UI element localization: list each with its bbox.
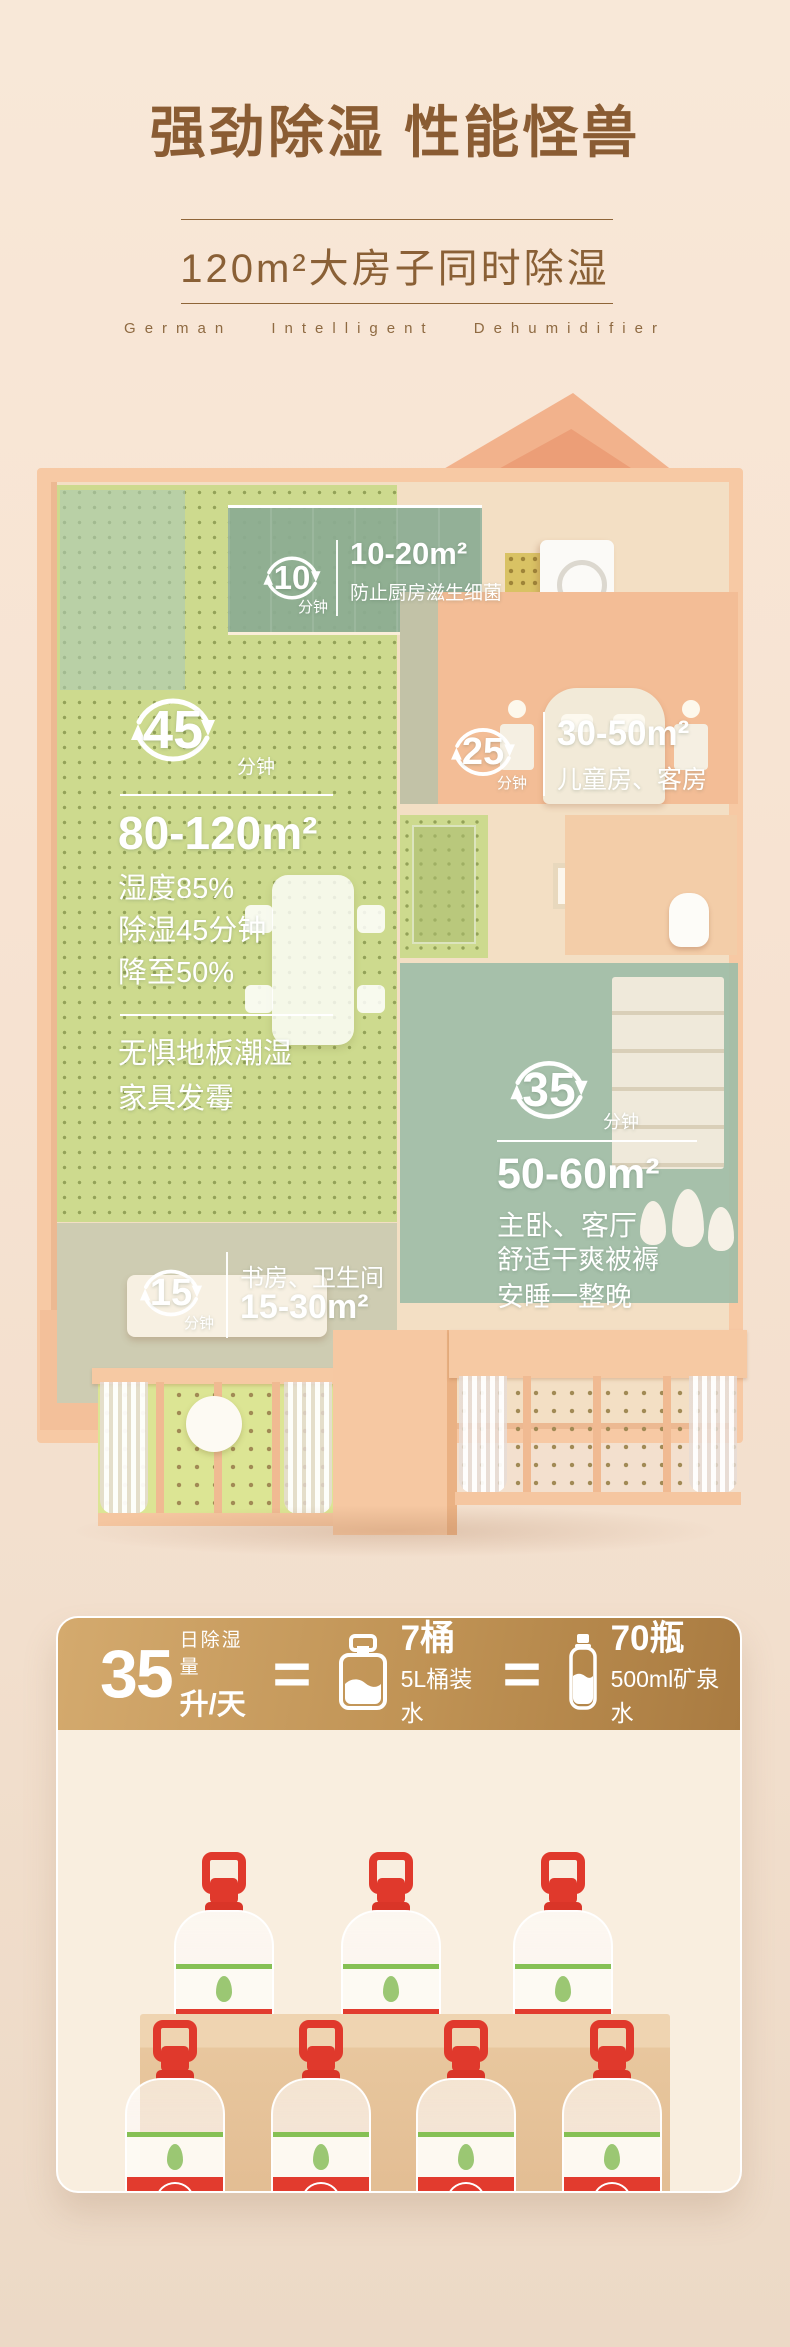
water-bottle-5l: 5L xyxy=(123,2020,227,2193)
water-bottle-icon xyxy=(563,1632,603,1717)
window-mullion xyxy=(156,1382,164,1514)
window-mullion xyxy=(663,1376,671,1493)
window-mullion xyxy=(593,1376,601,1493)
area-range: 15-30m² xyxy=(240,1288,369,1327)
ground-shadow xyxy=(70,1505,720,1557)
chair xyxy=(357,905,385,933)
bottle-cap xyxy=(307,2046,335,2072)
daily-capacity-card: 35 日除湿量 升/天 = 7桶 5L桶装水 = 70瓶 500ml矿泉水 xyxy=(56,1616,742,2193)
hallway-closet xyxy=(400,815,488,958)
daily-capacity-unit: 升/天 xyxy=(180,1681,251,1723)
bottle-desc: 500ml矿泉水 xyxy=(611,1660,722,1728)
water-jug-icon xyxy=(333,1632,393,1717)
stat-line: 降至50% xyxy=(118,952,266,994)
toilet xyxy=(669,893,709,947)
benefit-line: 家具发霉 xyxy=(118,1077,292,1122)
equals-sign: = xyxy=(502,1641,541,1708)
timer-circle-icon: 45 xyxy=(123,680,223,780)
divider xyxy=(226,1252,228,1338)
stat-line: 除湿45分钟 xyxy=(118,910,266,952)
capacity-header: 35 日除湿量 升/天 = 7桶 5L桶装水 = 70瓶 500ml矿泉水 xyxy=(58,1618,740,1730)
water-bottle-5l: 5L xyxy=(269,2020,373,2193)
divider xyxy=(120,1014,333,1016)
minutes-unit: 分钟 xyxy=(497,772,527,793)
benefit-line: 舒适干爽被褥 xyxy=(497,1242,659,1279)
room-names: 儿童房、客房 xyxy=(557,760,707,796)
room-bathroom xyxy=(565,815,737,955)
bottle-cap xyxy=(210,1878,238,1904)
area-range: 50-60m² xyxy=(497,1150,660,1199)
kids-room-annotation: 25 分钟 30-50m² 儿童房、客房 xyxy=(445,710,745,806)
minutes-value: 35 xyxy=(503,1044,595,1136)
english-tagline: German Intelligent Dehumidifier xyxy=(0,320,790,337)
minutes-unit: 分钟 xyxy=(603,1108,639,1134)
minutes-unit: 分钟 xyxy=(298,596,328,617)
window-mullion xyxy=(272,1382,280,1514)
bottle-body: 5L xyxy=(271,2078,371,2193)
benefit-lines: 无惧地板潮湿 家具发霉 xyxy=(118,1032,292,1122)
bottle-sticker: 5L xyxy=(418,2137,514,2193)
divider xyxy=(497,1140,697,1142)
page-title: 强劲除湿 性能怪兽 xyxy=(0,88,790,169)
master-bedroom-annotation: 35 分钟 50-60m² 主卧、客厅 舒适干爽被褥 安睡一整晚 xyxy=(497,1044,737,1314)
bottle-body: 5L xyxy=(416,2078,516,2193)
curtain xyxy=(284,1382,332,1514)
chair xyxy=(357,985,385,1013)
curtain xyxy=(689,1376,737,1493)
benefit-lines: 舒适干爽被褥 安睡一整晚 xyxy=(497,1242,659,1316)
bottle-cap xyxy=(377,1878,405,1904)
living-annotation: 45 分钟 80-120m² 湿度85% 除湿45分钟 降至50% 无惧地板潮湿… xyxy=(115,680,351,1140)
jug-count: 7桶 xyxy=(401,1620,481,1659)
benefit-line: 安睡一整晚 xyxy=(497,1279,659,1316)
room-benefit: 防止厨房滋生细菌 xyxy=(350,578,502,605)
bottle-count: 70瓶 xyxy=(611,1620,722,1659)
divider xyxy=(120,794,333,796)
balcony-right xyxy=(455,1330,741,1505)
jug-desc: 5L桶装水 xyxy=(401,1660,481,1728)
bottle-sticker: 5L xyxy=(127,2137,223,2193)
bottle-display: 5L 5L 5L 5L 5L 5L xyxy=(58,1730,740,2193)
water-bottle-5l: 5L xyxy=(560,2020,664,2193)
balcony-left xyxy=(98,1368,334,1526)
glass-door xyxy=(60,490,185,690)
balcony-table xyxy=(186,1396,242,1452)
leaf-icon xyxy=(555,1976,571,2002)
bottle-body: 5L xyxy=(125,2078,225,2193)
area-range: 30-50m² xyxy=(557,714,689,754)
volume-badge: 5L xyxy=(156,2182,194,2193)
kitchen-annotation: 10 分钟 10-20m² 防止厨房滋生细菌 xyxy=(252,530,492,640)
window-sill xyxy=(455,1492,741,1505)
leaf-icon xyxy=(167,2144,183,2170)
curtain xyxy=(459,1376,507,1493)
window-mullion xyxy=(523,1376,531,1493)
humidity-stats: 湿度85% 除湿45分钟 降至50% xyxy=(118,868,266,994)
divider xyxy=(336,540,338,616)
leaf-icon xyxy=(383,1976,399,2002)
timer-circle-icon: 35 xyxy=(503,1044,595,1136)
bottle-body: 5L xyxy=(562,2078,662,2193)
room-names: 主卧、客厅 xyxy=(497,1204,637,1244)
bottle-sticker: 5L xyxy=(564,2137,660,2193)
poster: 强劲除湿 性能怪兽 120m²大房子同时除湿 German Intelligen… xyxy=(0,0,790,2347)
bottle-sticker: 5L xyxy=(273,2137,369,2193)
divider-line xyxy=(181,303,613,304)
stat-line: 湿度85% xyxy=(118,868,266,910)
leaf-icon xyxy=(216,1976,232,2002)
study-annotation: 15 分钟 书房、卫生间 15-30m² xyxy=(130,1252,410,1348)
divider-line xyxy=(181,219,613,220)
leaf-icon xyxy=(604,2144,620,2170)
equals-sign: = xyxy=(272,1641,311,1708)
leaf-icon xyxy=(458,2144,474,2170)
daily-capacity-label: 日除湿量 xyxy=(180,1625,251,1679)
area-range: 10-20m² xyxy=(350,536,467,572)
leaf-icon xyxy=(313,2144,329,2170)
water-bottle-5l: 5L xyxy=(414,2020,518,2193)
minutes-unit: 分钟 xyxy=(184,1312,214,1333)
benefit-line: 无惧地板潮湿 xyxy=(118,1032,292,1077)
daily-capacity-value: 35 xyxy=(100,1640,172,1708)
divider xyxy=(543,712,545,796)
area-range: 80-120m² xyxy=(118,806,317,860)
balcony-beam xyxy=(449,1330,747,1378)
volume-badge: 5L xyxy=(593,2182,631,2193)
volume-badge: 5L xyxy=(302,2182,340,2193)
curtain xyxy=(100,1382,148,1514)
bottle-cap xyxy=(161,2046,189,2072)
minutes-value: 45 xyxy=(123,680,223,780)
bottle-cap xyxy=(549,1878,577,1904)
closet-door xyxy=(412,825,476,944)
minutes-unit: 分钟 xyxy=(237,752,275,779)
bottle-cap xyxy=(452,2046,480,2072)
bottle-cap xyxy=(598,2046,626,2072)
volume-badge: 5L xyxy=(447,2182,485,2193)
page-subtitle: 120m²大房子同时除湿 xyxy=(0,236,790,294)
